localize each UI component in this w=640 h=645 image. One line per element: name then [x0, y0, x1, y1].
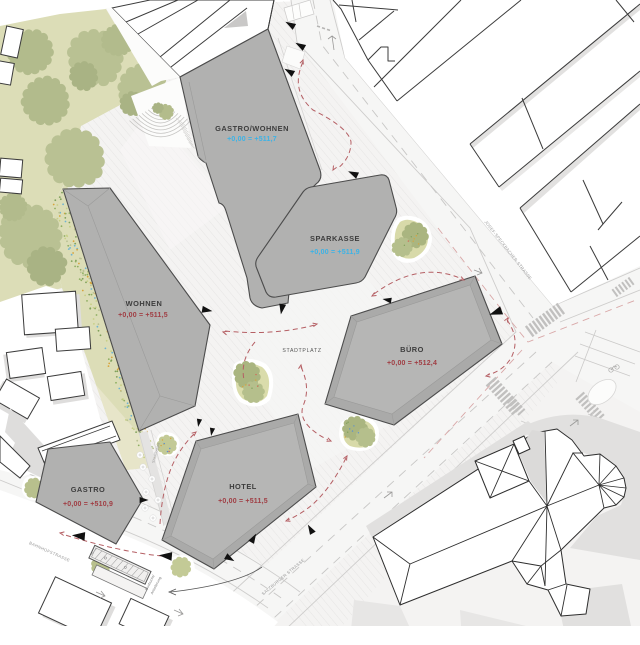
svg-text:+0,00 = +512,4: +0,00 = +512,4: [387, 360, 437, 367]
svg-text:+0,00 = +510,9: +0,00 = +510,9: [63, 501, 113, 508]
svg-text:WOHNEN: WOHNEN: [126, 299, 163, 308]
svg-text:GASTRO/WOHNEN: GASTRO/WOHNEN: [215, 124, 289, 133]
svg-text:SPARKASSE: SPARKASSE: [310, 234, 360, 243]
svg-text:+0,00 = +511,9: +0,00 = +511,9: [310, 249, 360, 256]
svg-text:STADTPLATZ: STADTPLATZ: [282, 348, 321, 354]
svg-text:BÜRO: BÜRO: [400, 345, 424, 354]
svg-text:+0,00 = +511,5: +0,00 = +511,5: [218, 498, 268, 505]
svg-text:GASTRO: GASTRO: [71, 485, 106, 494]
svg-text:+0,00 = +511,7: +0,00 = +511,7: [227, 136, 277, 143]
svg-text:+0,00 = +511,5: +0,00 = +511,5: [118, 312, 168, 319]
svg-text:HOTEL: HOTEL: [229, 482, 257, 491]
